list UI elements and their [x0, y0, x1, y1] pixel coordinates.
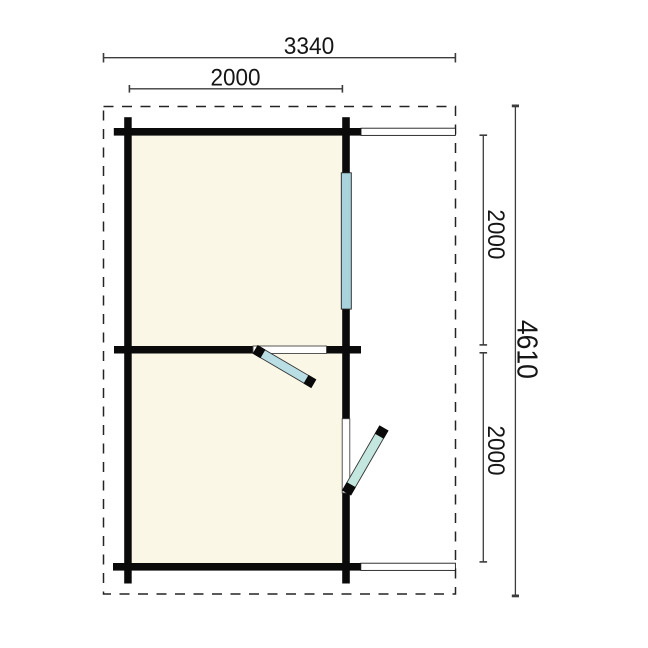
svg-text:2000: 2000 — [482, 209, 509, 259]
svg-text:3340: 3340 — [284, 33, 335, 60]
svg-text:4610: 4610 — [510, 320, 542, 379]
svg-text:2000: 2000 — [211, 65, 261, 92]
svg-text:2000: 2000 — [482, 426, 509, 476]
